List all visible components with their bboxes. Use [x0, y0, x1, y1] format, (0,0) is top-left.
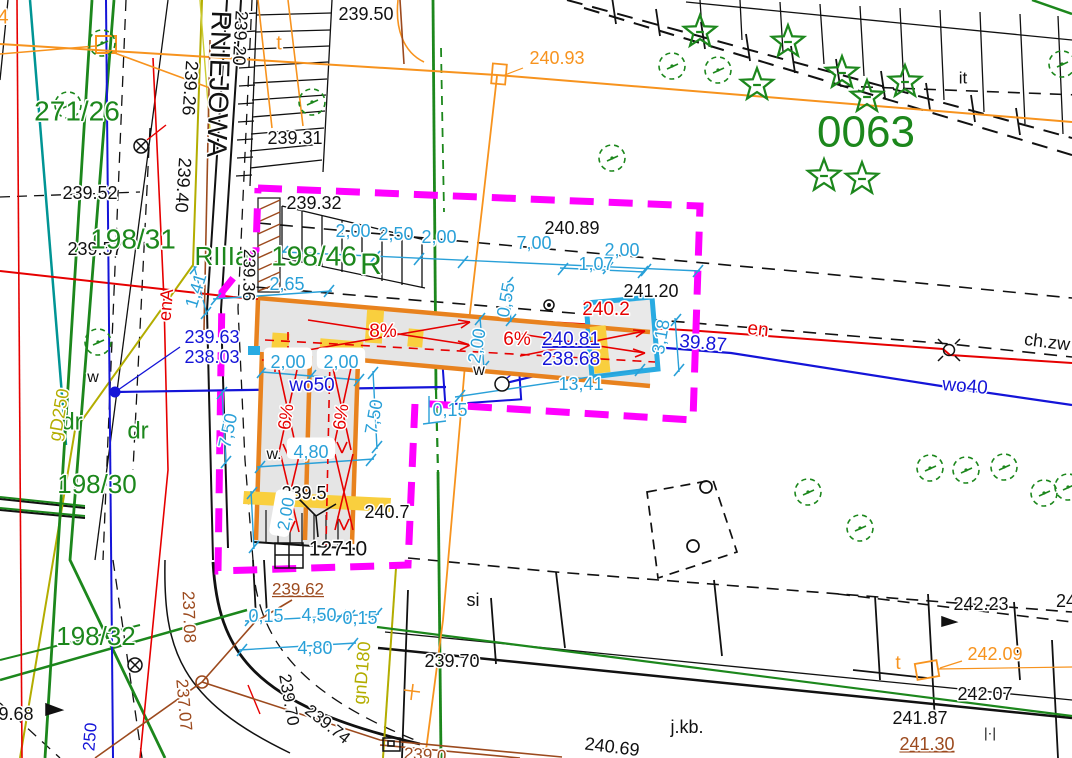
cyan-mark	[248, 346, 260, 355]
map-label: si	[467, 590, 480, 610]
map-label: enA	[154, 288, 177, 322]
map-label: 0063	[817, 108, 915, 157]
map-label: 239.63	[184, 327, 239, 347]
map-label: w.	[265, 446, 281, 463]
map-label: wo50	[288, 375, 334, 396]
map-label: 6%	[329, 403, 352, 432]
map-label: 7,50	[214, 412, 241, 450]
map-label: 0,15	[342, 608, 377, 628]
map-label: 2,00	[335, 221, 370, 241]
map-label: 4	[0, 6, 9, 28]
map-label: 241.20	[623, 281, 678, 301]
map-label: 237.07	[172, 678, 195, 731]
map-label: 242.09	[967, 644, 1022, 664]
arrow-icon	[942, 617, 956, 626]
map-label: 240.69	[584, 733, 641, 758]
map-label: 239.40	[171, 157, 195, 213]
map-label: 242.07	[957, 684, 1012, 704]
map-label: 24	[1056, 591, 1072, 611]
map-label: 2,00	[323, 352, 358, 372]
map-label: 2,50	[378, 224, 413, 244]
map-label: 241.30	[899, 734, 954, 754]
map-label: 7,00	[516, 233, 551, 253]
map-label: 198/30	[57, 469, 137, 499]
map-label: 0,15	[248, 606, 283, 626]
map-label: 237.08	[179, 591, 200, 644]
map-label: 6%	[503, 329, 531, 350]
map-label: RNIEJOWA	[201, 10, 237, 158]
map-label: 241.87	[892, 708, 947, 728]
map-label: 2,65	[269, 274, 304, 294]
map-label: wo40	[941, 374, 989, 399]
map-label: 239.36	[239, 249, 259, 301]
map-label: 238.68	[542, 349, 600, 370]
map-label: 238.03	[184, 347, 239, 367]
water-node-dot	[110, 387, 121, 398]
map-label: 240.2	[582, 299, 630, 320]
map-label: ch.zw	[1023, 329, 1072, 355]
map-label: 240.93	[529, 48, 584, 68]
map-label: 239.52	[62, 183, 117, 203]
map-label: 239.70	[424, 651, 479, 671]
sewer-teal-line	[30, 0, 66, 445]
map-label: 2,00	[421, 227, 456, 247]
map-label: 239.31	[267, 128, 322, 148]
map-label: 1,07	[578, 254, 613, 274]
map-label: 0,55	[493, 281, 519, 319]
map-label: R	[360, 248, 382, 281]
map-canvas: 239.50239.20239.26239.40RNIEJOWA239.31t2…	[0, 0, 1072, 758]
map-label: 239.70	[275, 673, 303, 728]
map-label: 239.62	[272, 579, 324, 598]
map-label: en	[746, 318, 769, 341]
arrow-icon	[46, 704, 62, 715]
map-label: it	[959, 68, 968, 87]
map-label: 7,50	[361, 398, 387, 436]
map-label: 239.32	[286, 193, 341, 213]
map-label: dr	[127, 417, 148, 444]
map-label: 240.89	[544, 218, 599, 238]
map-label: 242.23	[953, 594, 1008, 614]
map-label: 250	[79, 722, 100, 752]
map-label: 271/26	[34, 95, 120, 126]
map-label: 8%	[369, 321, 397, 342]
map-label: 240.7	[364, 502, 409, 522]
map-label: 0,15	[432, 400, 467, 420]
point-symbols	[46, 139, 960, 751]
map-label: 198/46	[271, 240, 357, 271]
valve-icon	[495, 377, 509, 391]
map-label: t	[895, 653, 901, 674]
map-label: 13,41	[558, 374, 603, 394]
site-plan-svg: 239.50239.20239.26239.40RNIEJOWA239.31t2…	[0, 0, 1072, 758]
map-label: 12710	[309, 538, 367, 561]
map-label: 9.68	[0, 704, 34, 724]
map-label: w	[86, 369, 99, 386]
map-label: |·|	[984, 725, 996, 741]
map-label: t	[276, 32, 282, 54]
telecom-t-mark-icon	[404, 684, 420, 700]
map-label: 240.81	[542, 329, 600, 350]
map-label: 6%	[274, 403, 297, 432]
map-label: j.kb.	[669, 717, 703, 737]
map-label: 239.0	[403, 744, 447, 758]
map-label: 39.87	[678, 331, 727, 356]
map-label: gnD180	[349, 641, 374, 706]
map-label: 4,80	[297, 638, 332, 658]
map-label: 239.50	[338, 4, 393, 24]
map-label: 4,50	[301, 605, 336, 625]
map-label: 198/31	[90, 223, 176, 254]
map-label: 2,00	[270, 352, 305, 372]
map-label: 4,80	[293, 442, 328, 462]
map-label: 239.26	[178, 60, 202, 116]
map-label: 198/32	[56, 621, 136, 651]
